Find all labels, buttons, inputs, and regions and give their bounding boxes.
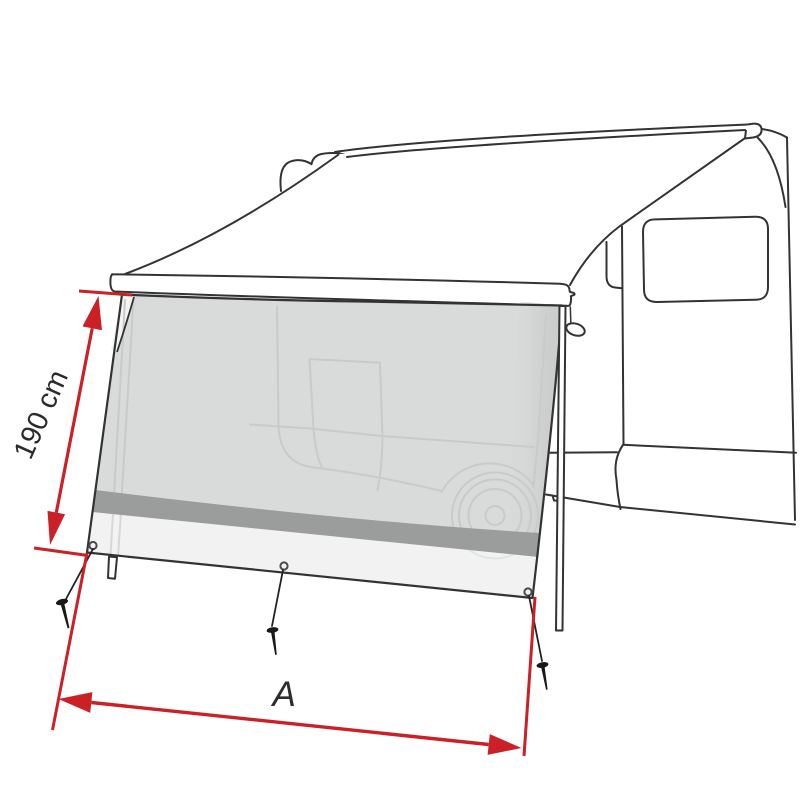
svg-text:A: A <box>271 675 296 714</box>
